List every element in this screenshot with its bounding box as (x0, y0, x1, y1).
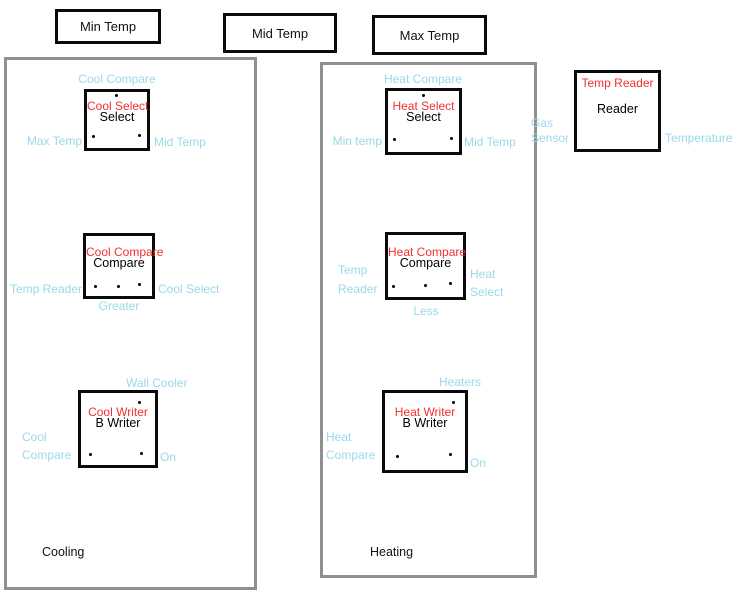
heat-compare-right-port-label: Heat Select (470, 265, 514, 301)
cool-compare-right-port-label: Cool Select (158, 280, 219, 298)
max-temp-label: Max Temp (400, 28, 460, 43)
port-dot[interactable] (424, 284, 427, 287)
temp-reader-type: Reader (577, 103, 658, 115)
heat-writer-right-port-label: On (470, 454, 486, 472)
port-dot[interactable] (452, 401, 455, 404)
mid-temp-label: Mid Temp (252, 26, 308, 41)
temp-reader-right-port-label: Temperature (665, 129, 732, 147)
heat-writer-block[interactable]: Heat Writer B Writer (382, 390, 468, 473)
port-dot[interactable] (138, 283, 141, 286)
heat-select-left-port-label: Min temp (326, 132, 382, 150)
heat-writer-top-port-label: Heaters (439, 373, 481, 391)
cool-select-right-port-label: Mid Temp (154, 133, 206, 151)
cool-compare-bottom-port-label: Greater (59, 297, 179, 315)
port-dot[interactable] (449, 282, 452, 285)
cool-compare-block[interactable]: Cool Compare Compare (83, 233, 155, 299)
temp-reader-name: Temp Reader (577, 77, 658, 89)
diagram-canvas: Min Temp Mid Temp Max Temp Cooling Heati… (0, 0, 742, 599)
cool-writer-left-port-label: Cool Compare (22, 428, 78, 464)
cool-compare-left-port-label: Temp Reader (6, 280, 82, 298)
port-dot[interactable] (392, 285, 395, 288)
port-dot[interactable] (449, 453, 452, 456)
heat-compare-bottom-port-label: Less (366, 302, 486, 320)
cool-writer-block[interactable]: Cool Writer B Writer (78, 390, 158, 468)
port-dot[interactable] (117, 285, 120, 288)
min-temp-variable-box[interactable]: Min Temp (55, 9, 161, 44)
cool-select-block[interactable]: Cool Select Select (84, 89, 150, 151)
port-dot[interactable] (138, 134, 141, 137)
port-dot[interactable] (138, 401, 141, 404)
heat-select-right-port-label: Mid Temp (464, 133, 516, 151)
heat-select-top-port-label: Heat Compare (363, 70, 483, 88)
heat-compare-block[interactable]: Heat Compare Compare (385, 232, 466, 300)
cool-select-top-port-label: Cool Compare (57, 70, 177, 88)
cool-writer-right-port-label: On (160, 448, 176, 466)
cool-compare-type: Compare (86, 257, 152, 269)
port-dot[interactable] (115, 94, 118, 97)
heat-writer-left-port-label: Heat Compare (326, 428, 384, 464)
port-dot[interactable] (422, 94, 425, 97)
heating-group-label: Heating (370, 545, 413, 559)
port-dot[interactable] (140, 452, 143, 455)
min-temp-label: Min Temp (80, 19, 136, 34)
port-dot[interactable] (94, 285, 97, 288)
cool-select-left-port-label: Max Temp (10, 132, 82, 150)
cooling-group-label: Cooling (42, 545, 84, 559)
port-dot[interactable] (396, 455, 399, 458)
port-dot[interactable] (92, 135, 95, 138)
port-dot[interactable] (89, 453, 92, 456)
temp-reader-left-port-label: Gas Sensor (531, 116, 579, 146)
temp-reader-block[interactable]: Temp Reader Reader (574, 70, 661, 152)
heat-compare-left-port-label: Temp Reader (338, 261, 386, 299)
cool-writer-top-port-label: Wall Cooler (126, 374, 188, 392)
port-dot[interactable] (393, 138, 396, 141)
heat-select-block[interactable]: Heat Select Select (385, 88, 462, 155)
port-dot[interactable] (450, 137, 453, 140)
max-temp-variable-box[interactable]: Max Temp (372, 15, 487, 55)
mid-temp-variable-box[interactable]: Mid Temp (223, 13, 337, 53)
